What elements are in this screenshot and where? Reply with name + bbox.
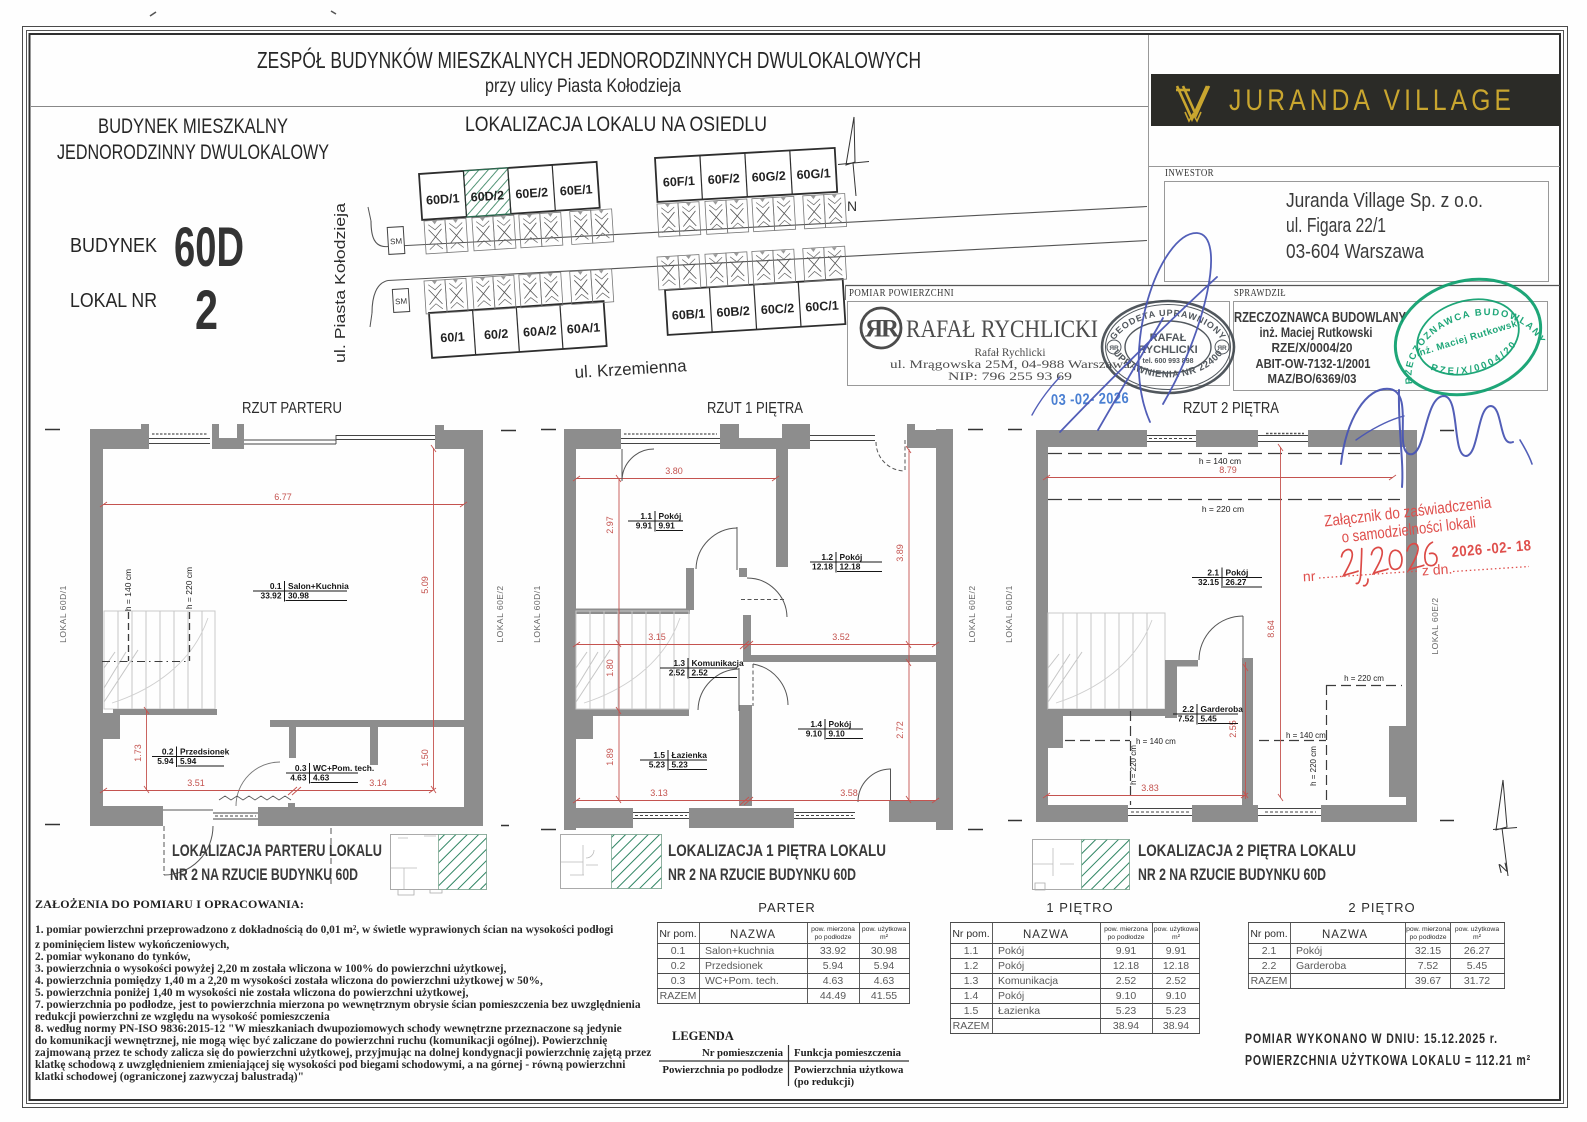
svg-text:12.18: 12.18 (812, 562, 833, 572)
svg-text:1.3: 1.3 (673, 658, 685, 668)
svg-text:9.10: 9.10 (806, 729, 823, 739)
svg-text:WC+Pom. tech.: WC+Pom. tech. (705, 975, 779, 987)
svg-text:2.52: 2.52 (1166, 975, 1187, 987)
svg-text:Łazienka: Łazienka (998, 1005, 1040, 1017)
svg-text:8.64: 8.64 (1266, 620, 1276, 638)
svg-text:1.5: 1.5 (653, 750, 665, 760)
svg-text:NR 2 NA RZUCIE BUDYNKU 60D: NR 2 NA RZUCIE BUDYNKU 60D (668, 865, 856, 884)
svg-text:0.3: 0.3 (671, 975, 686, 987)
svg-text:2.1: 2.1 (1262, 945, 1277, 957)
svg-text:zajmowaną przez te schody zali: zajmowaną przez te schody zalicza się do… (35, 1047, 651, 1059)
svg-text:Przedsionek: Przedsionek (705, 960, 764, 972)
svg-text:po podłodze: po podłodze (1409, 934, 1446, 941)
svg-text:h = 140 cm: h = 140 cm (1286, 731, 1326, 740)
svg-text:1 PIĘTRO: 1 PIĘTRO (1046, 900, 1113, 915)
svg-text:2.52: 2.52 (1116, 975, 1137, 987)
svg-text:8.79: 8.79 (1219, 465, 1237, 475)
svg-text:2.1: 2.1 (1207, 568, 1219, 578)
svg-text:RAZEM: RAZEM (953, 1020, 990, 1032)
svg-text:0.1: 0.1 (270, 581, 282, 591)
svg-text:60A/1: 60A/1 (566, 320, 600, 336)
svg-text:33.92: 33.92 (261, 591, 282, 601)
svg-text:30.98: 30.98 (871, 945, 897, 957)
svg-text:1.1: 1.1 (964, 945, 979, 957)
svg-text:1.1: 1.1 (640, 511, 652, 521)
svg-text:RZE/X/0004/20: RZE/X/0004/20 (1272, 340, 1353, 355)
svg-text:32.15: 32.15 (1198, 577, 1219, 587)
svg-text:klatkę schodową z uwzględnieni: klatkę schodową z uwzględnieniem zmienia… (35, 1059, 625, 1071)
svg-text:RZECZOZNAWCA BUDOWLANY: RZECZOZNAWCA BUDOWLANY (1234, 310, 1406, 326)
svg-text:Garderoba: Garderoba (1201, 704, 1244, 714)
svg-text:Pokój: Pokój (1296, 945, 1322, 957)
svg-text:pow. mierzona: pow. mierzona (1104, 926, 1148, 933)
svg-text:ZESPÓŁ BUDYNKÓW MIESZKALNYCH J: ZESPÓŁ BUDYNKÓW MIESZKALNYCH JEDNORODZIN… (257, 47, 921, 73)
svg-text:Pokój: Pokój (829, 719, 852, 729)
svg-text:0.2: 0.2 (162, 747, 174, 757)
svg-text:60D: 60D (174, 215, 244, 278)
svg-text:5.23: 5.23 (1166, 1005, 1187, 1017)
svg-text:LOKAL 60D/1: LOKAL 60D/1 (58, 585, 68, 643)
svg-text:NR 2 NA RZUCIE BUDYNKU 60D: NR 2 NA RZUCIE BUDYNKU 60D (170, 865, 358, 884)
svg-text:Komunikacja: Komunikacja (998, 975, 1058, 987)
svg-text:9.91: 9.91 (1116, 945, 1137, 957)
svg-text:3. powierzchnia o wysokości po: 3. powierzchnia o wysokości powyżej 2,20… (35, 963, 507, 975)
svg-text:LOKALIZACJA LOKALU NA OSIEDLU: LOKALIZACJA LOKALU NA OSIEDLU (465, 113, 767, 136)
svg-text:5.45: 5.45 (1467, 960, 1488, 972)
svg-text:60C/2: 60C/2 (761, 301, 795, 317)
svg-text:Pokój: Pokój (1226, 568, 1249, 578)
svg-text:h = 220 cm: h = 220 cm (1344, 674, 1384, 683)
svg-text:2.72: 2.72 (895, 721, 905, 739)
svg-text:RAFAŁ: RAFAŁ (1150, 332, 1187, 344)
svg-text:60B/1: 60B/1 (671, 307, 705, 323)
svg-text:Łazienka: Łazienka (672, 750, 708, 760)
svg-text:5.09: 5.09 (420, 576, 430, 594)
svg-text:4.63: 4.63 (313, 773, 330, 783)
svg-text:60A/2: 60A/2 (523, 323, 557, 339)
svg-text:po podłodze: po podłodze (1107, 934, 1144, 941)
svg-text:Komunikacja: Komunikacja (692, 658, 744, 668)
svg-text:POMIAR WYKONANO W DNIU: 15.12.: POMIAR WYKONANO W DNIU: 15.12.2025 r. (1245, 1030, 1498, 1046)
svg-text:Salon+Kuchnia: Salon+Kuchnia (288, 581, 349, 591)
svg-text:po podłodze: po podłodze (814, 934, 851, 941)
svg-text:9.10: 9.10 (1166, 990, 1187, 1002)
svg-text:60E/1: 60E/1 (559, 182, 593, 198)
svg-text:5.94: 5.94 (823, 960, 844, 972)
svg-text:ЯR: ЯR (865, 316, 900, 343)
svg-text:2.97: 2.97 (605, 516, 615, 534)
svg-text:Pokój: Pokój (840, 552, 863, 562)
svg-text:2.52: 2.52 (692, 668, 709, 678)
svg-text:NAZWA: NAZWA (1322, 929, 1368, 941)
svg-text:POMIAR POWIERZCHNI: POMIAR POWIERZCHNI (849, 287, 954, 299)
svg-text:NIP: 796 255 93 69: NIP: 796 255 93 69 (948, 369, 1072, 383)
svg-text:60D/2: 60D/2 (470, 188, 504, 204)
svg-text:ЯR: ЯR (1109, 345, 1119, 352)
svg-text:0.1: 0.1 (671, 945, 686, 957)
svg-text:12.18: 12.18 (840, 562, 861, 572)
svg-text:60D/1: 60D/1 (426, 191, 460, 207)
svg-text:39.67: 39.67 (1415, 975, 1441, 987)
svg-text:ZAŁOŻENIA DO POMIARU I OPRACOW: ZAŁOŻENIA DO POMIARU I OPRACOWANIA: (35, 897, 304, 911)
svg-text:3.58: 3.58 (840, 788, 858, 798)
svg-text:30.98: 30.98 (288, 591, 309, 601)
svg-text:pow. użytkowa: pow. użytkowa (1455, 926, 1499, 933)
svg-text:9.10: 9.10 (1116, 990, 1137, 1002)
svg-text:60F/1: 60F/1 (663, 174, 696, 190)
svg-text:Salon+kuchnia: Salon+kuchnia (705, 945, 774, 957)
svg-text:Funkcja pomieszczenia: Funkcja pomieszczenia (794, 1047, 902, 1059)
svg-text:z pominięciem listew wykończen: z pominięciem listew wykończeniowych, (35, 939, 229, 951)
svg-text:do komunikacji wewnętrznej, ni: do komunikacji wewnętrznej, nie mogą wię… (35, 1035, 607, 1047)
svg-text:JURANDA VILLAGE: JURANDA VILLAGE (1229, 84, 1515, 117)
svg-text:1.5: 1.5 (964, 1005, 979, 1017)
svg-text:41.55: 41.55 (871, 990, 897, 1002)
svg-text:PARTER: PARTER (758, 900, 816, 915)
svg-text:3.15: 3.15 (648, 632, 666, 642)
svg-text:pow. użytkowa: pow. użytkowa (1154, 926, 1198, 933)
svg-text:h = 220 cm: h = 220 cm (184, 567, 194, 609)
svg-text:LEGENDA: LEGENDA (672, 1029, 734, 1043)
svg-text:1.89: 1.89 (605, 748, 615, 766)
svg-text:SM: SM (390, 237, 403, 247)
svg-text:SM: SM (395, 297, 408, 307)
svg-text:nr: nr (1302, 568, 1316, 585)
svg-text:2.2: 2.2 (1182, 704, 1194, 714)
svg-text:1.4: 1.4 (810, 719, 822, 729)
svg-text:h = 220 cm: h = 220 cm (1309, 746, 1318, 786)
svg-text:5.94: 5.94 (157, 756, 174, 766)
svg-text:3.52: 3.52 (832, 632, 850, 642)
svg-text:Nr pomieszczenia: Nr pomieszczenia (702, 1047, 784, 1059)
svg-text:LOKAL 60E/2: LOKAL 60E/2 (1430, 597, 1440, 654)
svg-text:8. według normy PN-ISO 9836:20: 8. według normy PN-ISO 9836:2015-12 "W m… (35, 1023, 622, 1035)
svg-text:60G/2: 60G/2 (751, 169, 786, 185)
svg-text:2.55: 2.55 (1228, 720, 1238, 738)
svg-text:Pokój: Pokój (998, 945, 1024, 957)
svg-text:0.3: 0.3 (295, 763, 307, 773)
svg-text:MAZ/BO/6369/03: MAZ/BO/6369/03 (1268, 371, 1357, 386)
svg-text:Pokój: Pokój (659, 511, 682, 521)
svg-text:inż. Maciej Rutkowski: inż. Maciej Rutkowski (1260, 325, 1373, 340)
svg-text:2 PIĘTRO: 2 PIĘTRO (1348, 900, 1415, 915)
svg-text:26.27: 26.27 (1226, 577, 1247, 587)
svg-text:3.13: 3.13 (650, 788, 668, 798)
svg-text:WC+Pom. tech.: WC+Pom. tech. (313, 763, 374, 773)
svg-text:0.2: 0.2 (671, 960, 686, 972)
svg-text:BUDYNEK: BUDYNEK (70, 235, 158, 257)
svg-text:h = 140 cm: h = 140 cm (1136, 737, 1176, 746)
svg-text:ABIT-OW-7132-1/2001: ABIT-OW-7132-1/2001 (1256, 356, 1371, 371)
svg-text:5.94: 5.94 (180, 756, 197, 766)
svg-text:3.14: 3.14 (369, 778, 387, 788)
svg-text:RAZEM: RAZEM (660, 990, 697, 1002)
svg-text:3.83: 3.83 (1141, 783, 1159, 793)
svg-text:5.23: 5.23 (649, 760, 666, 770)
svg-text:32.15: 32.15 (1415, 945, 1441, 957)
svg-text:LOKAL 60D/1: LOKAL 60D/1 (532, 585, 542, 643)
svg-text:5.23: 5.23 (1116, 1005, 1137, 1017)
svg-text:RZUT 2 PIĘTRA: RZUT 2 PIĘTRA (1183, 400, 1279, 417)
svg-text:5. powierzchnia poniżej 1,40 m: 5. powierzchnia poniżej 1,40 m wysokości… (35, 987, 469, 999)
svg-text:60/2: 60/2 (484, 327, 509, 343)
svg-text:BUDYNEK MIESZKALNY: BUDYNEK MIESZKALNY (98, 115, 288, 138)
svg-text:5.23: 5.23 (672, 760, 689, 770)
svg-text:klatki schodowej (ograniczonej: klatki schodowej (ograniczonej zazwyczaj… (35, 1071, 304, 1083)
svg-text:Powierzchnia po podłodze: Powierzchnia po podłodze (662, 1064, 783, 1076)
svg-text:LOKAL 60E/2: LOKAL 60E/2 (967, 585, 977, 642)
svg-text:przy ulicy Piasta Kołodzieja: przy ulicy Piasta Kołodzieja (485, 76, 681, 97)
svg-text:m²: m² (880, 934, 889, 941)
svg-text:RZUT PARTERU: RZUT PARTERU (242, 400, 342, 417)
svg-text:6.77: 6.77 (274, 492, 292, 502)
svg-text:1.73: 1.73 (133, 744, 143, 762)
svg-text:LOKAL 60E/2: LOKAL 60E/2 (495, 585, 505, 642)
svg-text:h = 140 cm: h = 140 cm (123, 569, 133, 611)
svg-text:9.91: 9.91 (636, 521, 653, 531)
svg-text:ЯR: ЯR (1217, 345, 1227, 352)
svg-text:4.63: 4.63 (823, 975, 844, 987)
svg-text:Powierzchnia użytkowa: Powierzchnia użytkowa (794, 1064, 904, 1076)
svg-text:26.27: 26.27 (1464, 945, 1490, 957)
svg-text:03-604 Warszawa: 03-604 Warszawa (1286, 241, 1425, 263)
svg-text:4.63: 4.63 (874, 975, 895, 987)
svg-text:60C/1: 60C/1 (805, 298, 839, 314)
svg-text:RAFAŁ RYCHLICKI: RAFAŁ RYCHLICKI (906, 316, 1098, 343)
svg-text:12.18: 12.18 (1113, 960, 1139, 972)
svg-text:Nr pom.: Nr pom. (659, 928, 696, 940)
svg-text:(po redukcji): (po redukcji) (794, 1076, 854, 1088)
svg-text:03 -02- 2026: 03 -02- 2026 (1051, 390, 1129, 409)
svg-text:1.2: 1.2 (821, 552, 833, 562)
svg-text:redukcji powierzchni ze względ: redukcji powierzchni ze względu na wysok… (35, 1011, 330, 1023)
svg-text:LOKALIZACJA 2 PIĘTRA LOKALU: LOKALIZACJA 2 PIĘTRA LOKALU (1138, 841, 1356, 860)
svg-text:3.89: 3.89 (895, 544, 905, 562)
svg-text:3.80: 3.80 (665, 466, 683, 476)
svg-text:9.91: 9.91 (1166, 945, 1187, 957)
svg-text:5.45: 5.45 (1201, 714, 1218, 724)
svg-text:7.52: 7.52 (1178, 714, 1195, 724)
svg-text:12.18: 12.18 (1163, 960, 1189, 972)
svg-text:4.63: 4.63 (290, 773, 307, 783)
svg-text:Pokój: Pokój (998, 990, 1024, 1002)
svg-text:60B/2: 60B/2 (716, 304, 750, 320)
svg-text:SPRAWDZIŁ: SPRAWDZIŁ (1234, 287, 1286, 299)
svg-text:NAZWA: NAZWA (730, 929, 776, 941)
svg-text:RAZEM: RAZEM (1251, 975, 1288, 987)
svg-text:RZUT 1 PIĘTRA: RZUT 1 PIĘTRA (707, 400, 803, 417)
svg-text:ul. Piasta Kołodzieja: ul. Piasta Kołodzieja (333, 202, 349, 363)
svg-text:Garderoba: Garderoba (1296, 960, 1346, 972)
svg-text:33.92: 33.92 (820, 945, 846, 957)
svg-text:pow. mierzona: pow. mierzona (1406, 926, 1450, 933)
svg-text:LOKAL 60D/1: LOKAL 60D/1 (1004, 585, 1014, 643)
svg-text:31.72: 31.72 (1464, 975, 1490, 987)
svg-text:2. pomiar wykonano do tynków,: 2. pomiar wykonano do tynków, (35, 951, 191, 963)
svg-text:NR 2 NA RZUCIE BUDYNKU 60D: NR 2 NA RZUCIE BUDYNKU 60D (1138, 865, 1326, 884)
svg-text:LOKALIZACJA 1 PIĘTRA LOKALU: LOKALIZACJA 1 PIĘTRA LOKALU (668, 841, 886, 860)
svg-text:44.49: 44.49 (820, 990, 846, 1002)
svg-text:POWIERZCHNIA UŻYTKOWA LOKALU =: POWIERZCHNIA UŻYTKOWA LOKALU = 112.21 m² (1245, 1052, 1531, 1069)
svg-text:N: N (847, 198, 857, 214)
svg-text:60/1: 60/1 (440, 330, 465, 346)
svg-text:JEDNORODZINNY DWULOKALOWY: JEDNORODZINNY DWULOKALOWY (57, 141, 329, 164)
svg-text:2.2: 2.2 (1262, 960, 1277, 972)
svg-text:NAZWA: NAZWA (1023, 929, 1069, 941)
svg-text:h = 220 cm: h = 220 cm (1129, 745, 1138, 785)
svg-text:Juranda Village Sp. z o.o.: Juranda Village Sp. z o.o. (1286, 190, 1483, 212)
svg-text:38.94: 38.94 (1113, 1020, 1139, 1032)
svg-text:60F/2: 60F/2 (707, 171, 740, 187)
svg-text:2.52: 2.52 (669, 668, 686, 678)
svg-text:m²: m² (1473, 934, 1482, 941)
svg-text:1.50: 1.50 (420, 749, 430, 767)
svg-text:1.2: 1.2 (964, 960, 979, 972)
svg-text:7.52: 7.52 (1418, 960, 1439, 972)
svg-text:h = 220 cm: h = 220 cm (1202, 504, 1244, 514)
svg-text:1.4: 1.4 (964, 990, 979, 1002)
svg-text:2: 2 (195, 278, 218, 341)
svg-text:Nr pom.: Nr pom. (952, 928, 989, 940)
svg-text:38.94: 38.94 (1163, 1020, 1189, 1032)
svg-text:Przedsionek: Przedsionek (180, 747, 230, 757)
svg-text:60G/1: 60G/1 (796, 166, 831, 182)
svg-text:1.80: 1.80 (605, 659, 615, 677)
svg-text:pow. mierzona: pow. mierzona (811, 926, 855, 933)
svg-text:9.10: 9.10 (829, 729, 846, 739)
svg-text:1.3: 1.3 (964, 975, 979, 987)
svg-text:ul. Figara 22/1: ul. Figara 22/1 (1286, 215, 1386, 237)
svg-text:7. powierzchnia po podłodze, j: 7. powierzchnia po podłodze, jest to pow… (35, 999, 641, 1011)
svg-text:pow. użytkowa: pow. użytkowa (862, 926, 906, 933)
svg-text:9.91: 9.91 (659, 521, 676, 531)
svg-text:1. pomiar powierzchni przeprow: 1. pomiar powierzchni przeprowadzono z d… (35, 924, 613, 936)
svg-text:4. powierzchnia pomiędzy 1,40: 4. powierzchnia pomiędzy 1,40 m a 2,20 m… (35, 975, 543, 987)
svg-text:INWESTOR: INWESTOR (1165, 167, 1214, 179)
svg-text:LOKAL NR: LOKAL NR (70, 290, 157, 312)
svg-text:LOKALIZACJA PARTERU LOKALU: LOKALIZACJA PARTERU LOKALU (172, 841, 382, 860)
svg-text:Nr pom.: Nr pom. (1250, 928, 1287, 940)
svg-text:Pokój: Pokój (998, 960, 1024, 972)
svg-text:5.94: 5.94 (874, 960, 895, 972)
svg-text:3.51: 3.51 (187, 778, 205, 788)
svg-text:60E/2: 60E/2 (515, 185, 549, 201)
svg-text:m²: m² (1172, 934, 1181, 941)
